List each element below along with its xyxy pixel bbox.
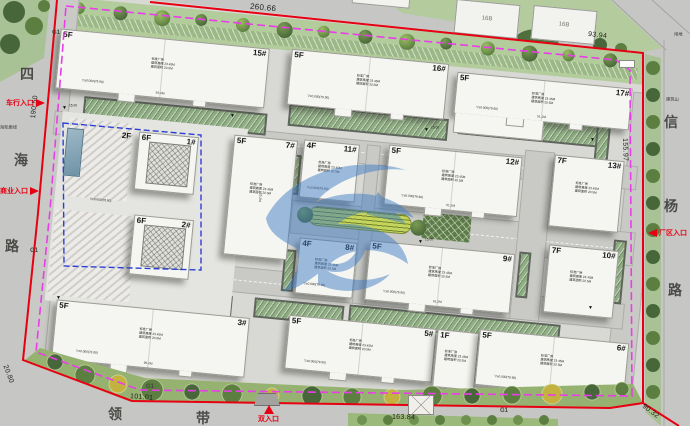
dim-right: 155.97 xyxy=(621,138,629,161)
road-marker-icon: ▼15.00 xyxy=(418,240,423,245)
building-wall-note: 建筑山 xyxy=(666,96,679,102)
road-name-west: 四 xyxy=(20,64,34,84)
signboard xyxy=(619,60,635,68)
entrance-secondary-label: 双入口 xyxy=(258,414,279,424)
road-name-east: 杨 xyxy=(664,196,678,216)
road-marker-icon: ▼ xyxy=(56,296,61,301)
arrow-right-icon xyxy=(30,187,39,195)
marker-value: 15.00 xyxy=(431,126,439,130)
road-marker-icon: ▼15.00 xyxy=(62,106,67,111)
road-name-south: 领 xyxy=(108,404,122,424)
coastline-note: 海轮廓线 xyxy=(0,124,17,130)
entrance-factory-label: 厂区入口 xyxy=(659,228,687,238)
entrance-factory: 厂区入口 xyxy=(648,228,687,238)
land-boundary-note: 用地 xyxy=(674,31,683,37)
site-plan-canvas: 16B 16B ▽±0.000(79.90)5F15#标准厂房建筑高度 23.4… xyxy=(0,0,690,426)
green-label: G1 xyxy=(500,408,508,414)
road-name-west: 海 xyxy=(14,150,28,170)
green-label: G1 xyxy=(30,248,38,254)
arrow-left-icon xyxy=(648,229,657,237)
entrance-commercial-label: 商业入口 xyxy=(0,186,28,196)
magenta-setback-line xyxy=(36,6,632,396)
road-name-south: 带 xyxy=(196,408,210,426)
road-name-west: 路 xyxy=(5,236,19,256)
dim-bottom-center: 163.84 xyxy=(392,414,415,422)
arrow-up-icon xyxy=(264,405,274,414)
entrance-vehicle: 车行入口 xyxy=(6,98,45,108)
road-marker-icon: ▼ xyxy=(588,306,593,311)
road-marker-icon: ▼15.00 xyxy=(424,128,429,133)
blue-parcel-line xyxy=(63,123,201,270)
road-name-east: 信 xyxy=(664,112,678,132)
road-marker-icon: ▼ xyxy=(590,138,595,143)
boundary-layer xyxy=(0,0,690,426)
arrow-right-icon xyxy=(36,99,45,107)
green-label: G1 xyxy=(146,384,154,390)
marker-value: 15.00 xyxy=(425,238,433,242)
marker-value: 15.00 xyxy=(69,104,77,108)
entrance-vehicle-label: 车行入口 xyxy=(6,98,34,108)
planter-square xyxy=(408,395,434,415)
green-label: G1 xyxy=(52,30,60,36)
red-boundary-line xyxy=(23,0,643,408)
entrance-commercial: 商业入口 xyxy=(0,186,39,196)
road-marker-icon: ▼ xyxy=(230,114,235,119)
entrance-secondary: 双入口 xyxy=(258,405,279,424)
road-name-east: 路 xyxy=(668,280,682,300)
